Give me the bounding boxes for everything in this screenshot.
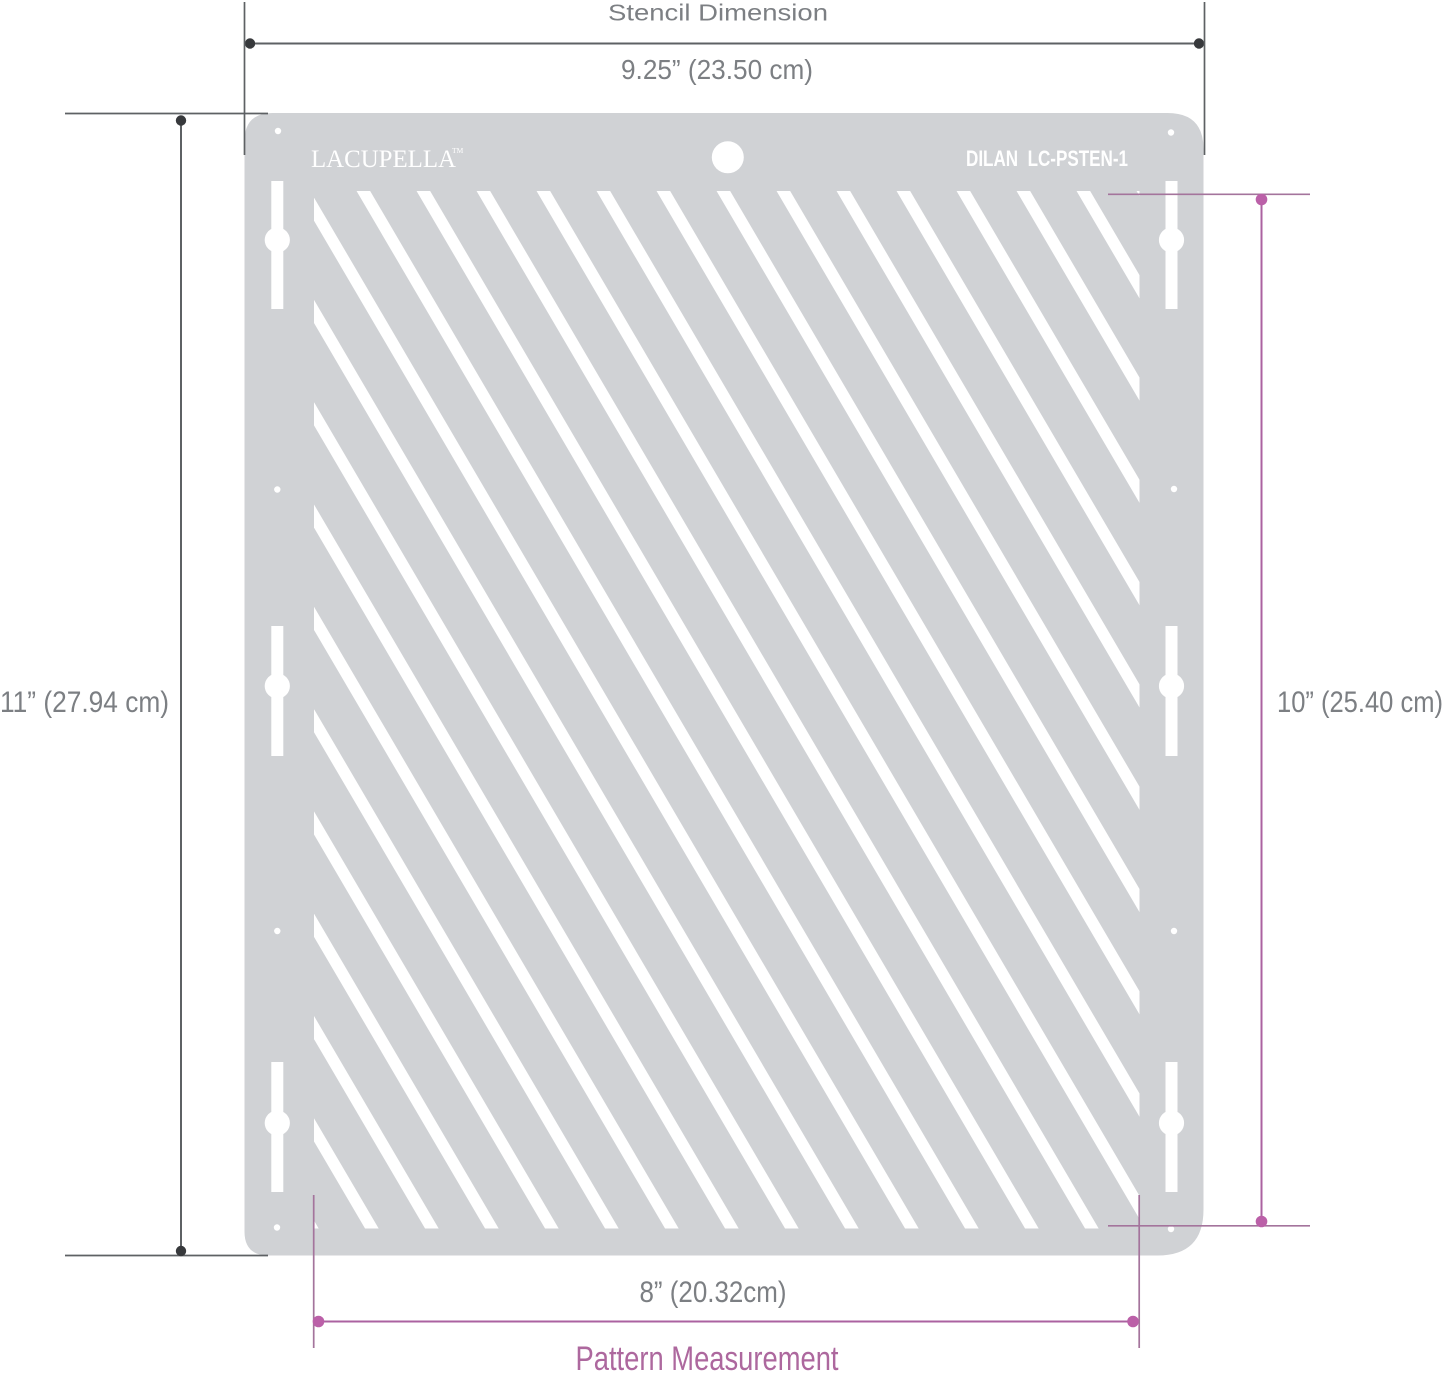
svg-text:LACUPELLA: LACUPELLA <box>311 144 457 173</box>
svg-text:11” (27.94 cm): 11” (27.94 cm) <box>0 686 169 719</box>
svg-text:TM: TM <box>452 146 464 155</box>
svg-text:Stencil Dimension: Stencil Dimension <box>608 0 828 26</box>
svg-text:8” (20.32cm): 8” (20.32cm) <box>640 1276 787 1309</box>
svg-text:10” (25.40 cm): 10” (25.40 cm) <box>1277 686 1443 719</box>
svg-text:DILAN LC-PSTEN-1: DILAN LC-PSTEN-1 <box>966 146 1128 171</box>
svg-text:9.25” (23.50 cm): 9.25” (23.50 cm) <box>621 54 813 85</box>
svg-text:Pattern Measurement: Pattern Measurement <box>576 1340 839 1373</box>
